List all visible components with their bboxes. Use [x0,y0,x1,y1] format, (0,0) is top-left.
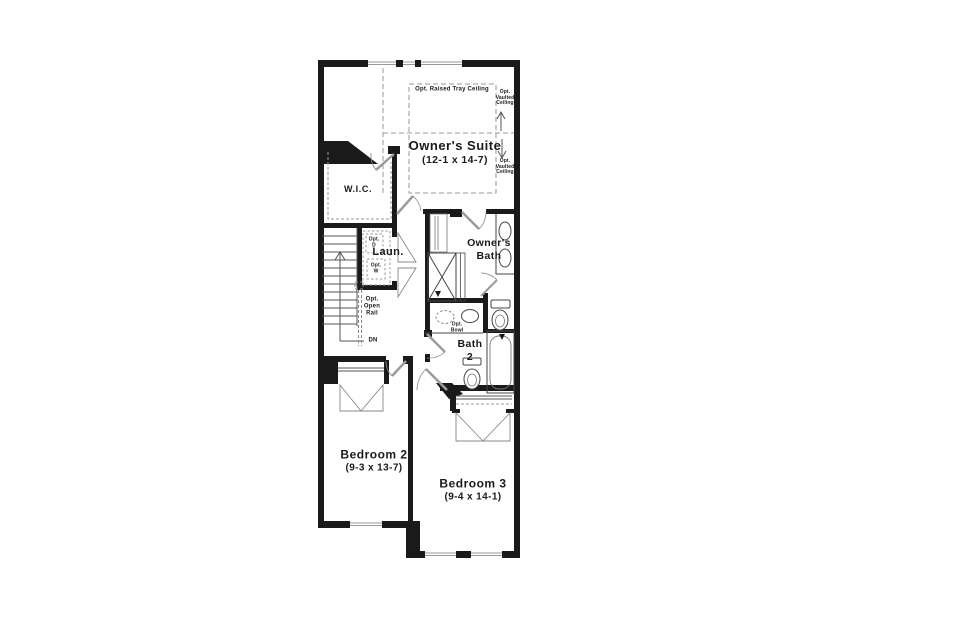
window-bedroom3-2 [471,551,502,558]
bedroom2-dims: (9-3 x 13-7) [345,463,402,474]
dn-label: DN [368,338,377,345]
vaulted-top-l3: Ceiling [496,101,513,107]
owners-bath-label: Owner's Bath [467,237,511,263]
bath2-l1: Bath [458,338,483,351]
vaulted-ceiling-label-top: Opt. Vaulted Ceiling [496,90,514,107]
vaulted-bottom-l3: Ceiling [496,170,513,176]
floor-plan-canvas: Opt. Raised Tray Ceiling Opt. Vaulted Ce… [0,0,967,627]
owners-toilet [491,300,510,330]
window-top-1 [368,60,396,67]
owners-suite-label: Owner's Suite [409,139,502,153]
window-bedroom2 [350,521,382,528]
bath2-l2: 2 [467,351,473,364]
bedroom2-label: Bedroom 2 [340,448,407,461]
opt-bowl-label: Opt. Bowl [451,323,463,334]
opt-bowl-l2: Bowl [451,328,463,334]
opt-washer-label: Opt. W [371,264,381,275]
owners-bath-l1: Owner's [467,237,511,250]
opt-open-rail-label: Opt. Open Rail [364,297,380,318]
bedroom3-dims: (9-4 x 14-1) [444,492,501,503]
floor-plan-svg [0,0,967,627]
open-rail-l1: Opt. [366,297,379,304]
bath2-label: Bath 2 [458,338,483,364]
window-top-2 [403,60,415,67]
tray-ceiling-label: Opt. Raised Tray Ceiling [415,87,489,94]
vaulted-ceiling-label-bottom: Opt. Vaulted Ceiling [496,159,514,176]
open-rail-l2: Open [364,304,380,311]
bedroom3-label: Bedroom 3 [439,477,506,490]
owners-bath-l2: Bath [477,250,502,263]
opt-washer-l2: W [374,269,379,275]
open-rail-l3: Rail [366,311,378,318]
bedroom2-closet-block [322,358,338,384]
bath2-sink [462,310,479,323]
window-top-3 [421,60,462,67]
owners-suite-dims: (12-1 x 14-7) [422,155,488,167]
window-bedroom3-1 [425,551,456,558]
laundry-label: Laun. [372,246,403,258]
wic-label: W.I.C. [344,185,372,195]
